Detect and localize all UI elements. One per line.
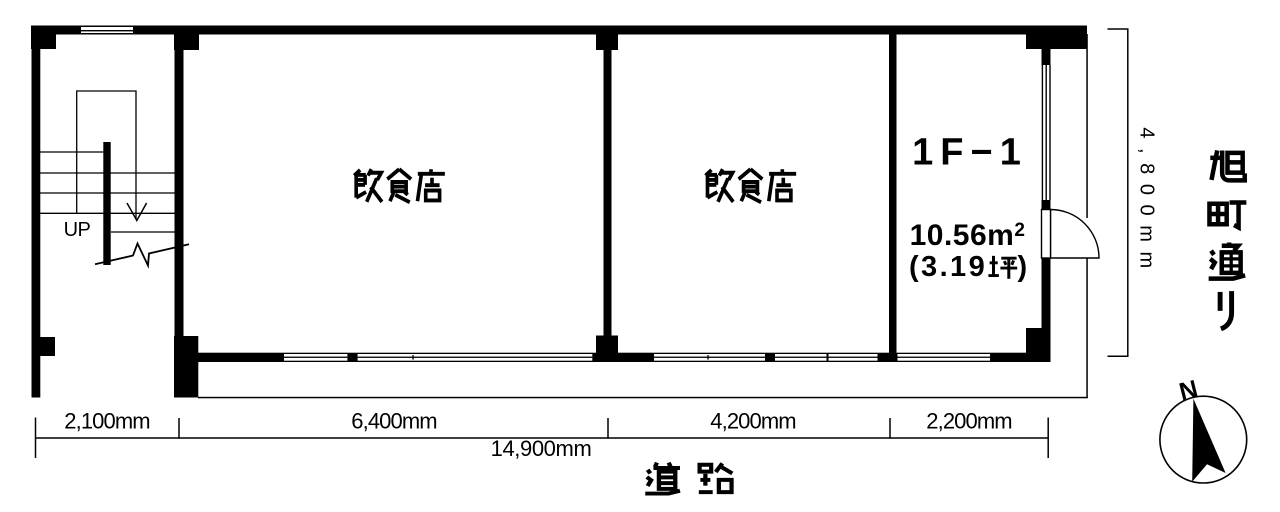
svg-text:4,800mm: 4,800mm [1136, 127, 1158, 278]
svg-text:N: N [1176, 375, 1200, 407]
svg-text:4,200mm: 4,200mm [710, 408, 795, 433]
svg-text:10.56m2: 10.56m2 [910, 219, 1026, 252]
svg-text:6,400mm: 6,400mm [351, 408, 436, 433]
svg-text:2,100mm: 2,100mm [64, 408, 149, 433]
svg-text:UP: UP [64, 219, 91, 241]
svg-text:): ) [1018, 251, 1028, 283]
svg-text:2,200mm: 2,200mm [926, 408, 1011, 433]
svg-text:14,900mm: 14,900mm [491, 436, 592, 461]
svg-text:1F−1: 1F−1 [912, 131, 1028, 173]
svg-text:(3.19: (3.19 [909, 251, 987, 283]
